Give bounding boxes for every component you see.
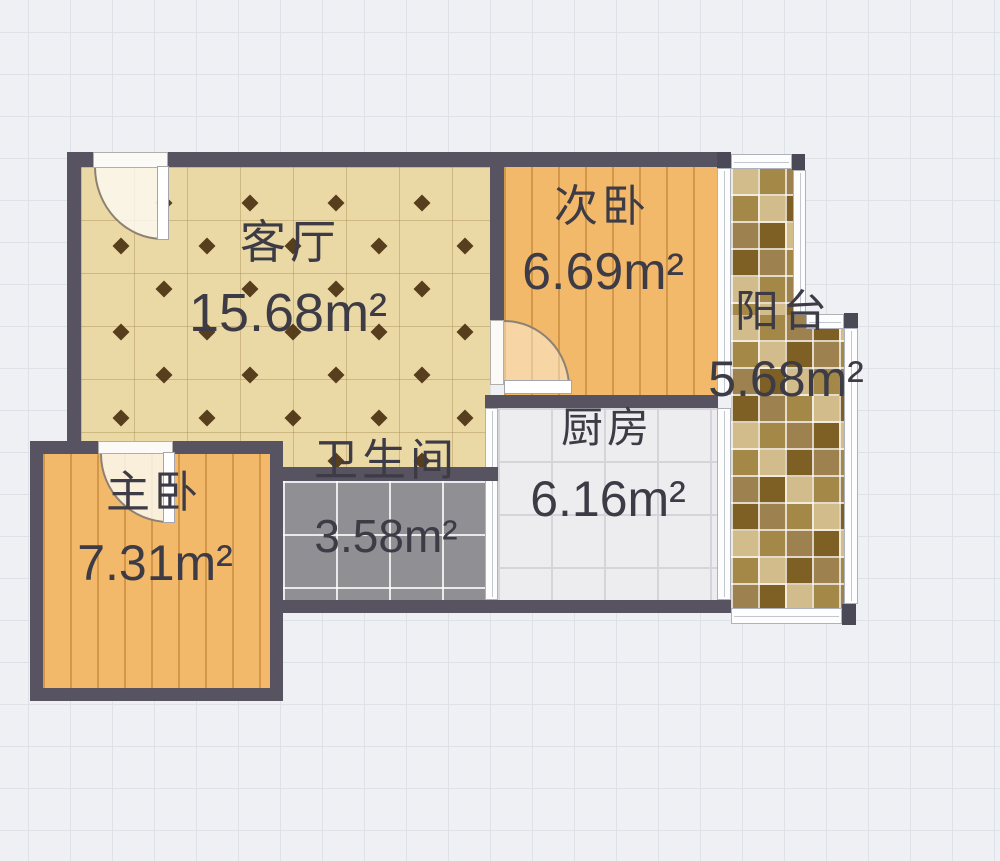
- room-label-second-bedroom-area: 6.69m²: [522, 246, 684, 298]
- second-bedroom-door-opening: [490, 320, 504, 385]
- room-label-master-bedroom-name: 主卧: [106, 471, 202, 515]
- floor-diamond-ornament: [285, 410, 302, 427]
- floor-diamond-ornament: [414, 195, 431, 212]
- wall-post-balcony-step: [844, 313, 858, 328]
- floor-diamond-ornament: [156, 367, 173, 384]
- room-label-master-bedroom-area: 7.31m²: [77, 538, 233, 588]
- floor-diamond-ornament: [328, 367, 345, 384]
- room-label-bathroom-area: 3.58m²: [314, 513, 457, 559]
- entry-door-leaf: [157, 166, 169, 240]
- floor-diamond-ornament: [371, 410, 388, 427]
- room-label-living-name: 客厅: [240, 219, 340, 265]
- wall-bedroom-right: [270, 441, 283, 701]
- floor-diamond-ornament: [457, 324, 474, 341]
- door-bathroom-kitchen: [485, 408, 498, 600]
- floor-diamond-ornament: [371, 238, 388, 255]
- room-label-balcony-name: 阳台: [735, 290, 831, 334]
- floor-diamond-ornament: [328, 195, 345, 212]
- wall-post-balcony-topleft: [717, 152, 731, 168]
- floor-diamond-ornament: [414, 281, 431, 298]
- second-bedroom-door-leaf: [504, 380, 572, 394]
- floor-diamond-ornament: [457, 238, 474, 255]
- window-balcony-top: [731, 154, 792, 169]
- wall-post-balcony-bottomright: [842, 604, 856, 625]
- wall-post-balcony-topright: [792, 154, 805, 170]
- floor-diamond-ornament: [242, 367, 259, 384]
- window-kitchen-balcony: [717, 408, 731, 600]
- master-bedroom-door-opening: [98, 441, 173, 454]
- room-label-kitchen-area: 6.16m²: [530, 474, 686, 524]
- wall-bedroom-bottom: [30, 688, 283, 701]
- floor-diamond-ornament: [113, 238, 130, 255]
- wall-bedroom-left: [30, 441, 43, 701]
- floor-diamond-ornament: [113, 324, 130, 341]
- room-label-second-bedroom-name: 次卧: [554, 185, 650, 229]
- floor-diamond-ornament: [457, 410, 474, 427]
- floor-plan-canvas: 客厅 15.68m² 次卧 6.69m² 阳台 5.68m² 厨房 6.16m²…: [0, 0, 1000, 861]
- wall-living-secondbedroom-divider: [490, 152, 504, 320]
- wall-bottom: [270, 600, 731, 613]
- floor-diamond-ornament: [156, 281, 173, 298]
- floor-diamond-ornament: [414, 367, 431, 384]
- floor-diamond-ornament: [199, 410, 216, 427]
- room-label-bathroom-name: 卫生间: [314, 439, 458, 483]
- window-balcony-bottom: [731, 608, 842, 624]
- wall-living-left: [67, 152, 81, 441]
- room-label-living-area: 15.68m²: [189, 286, 387, 340]
- room-label-balcony-area: 5.68m²: [708, 354, 864, 404]
- floor-diamond-ornament: [113, 410, 130, 427]
- room-label-kitchen-name: 厨房: [561, 407, 653, 449]
- floor-diamond-ornament: [242, 195, 259, 212]
- floor-diamond-ornament: [199, 238, 216, 255]
